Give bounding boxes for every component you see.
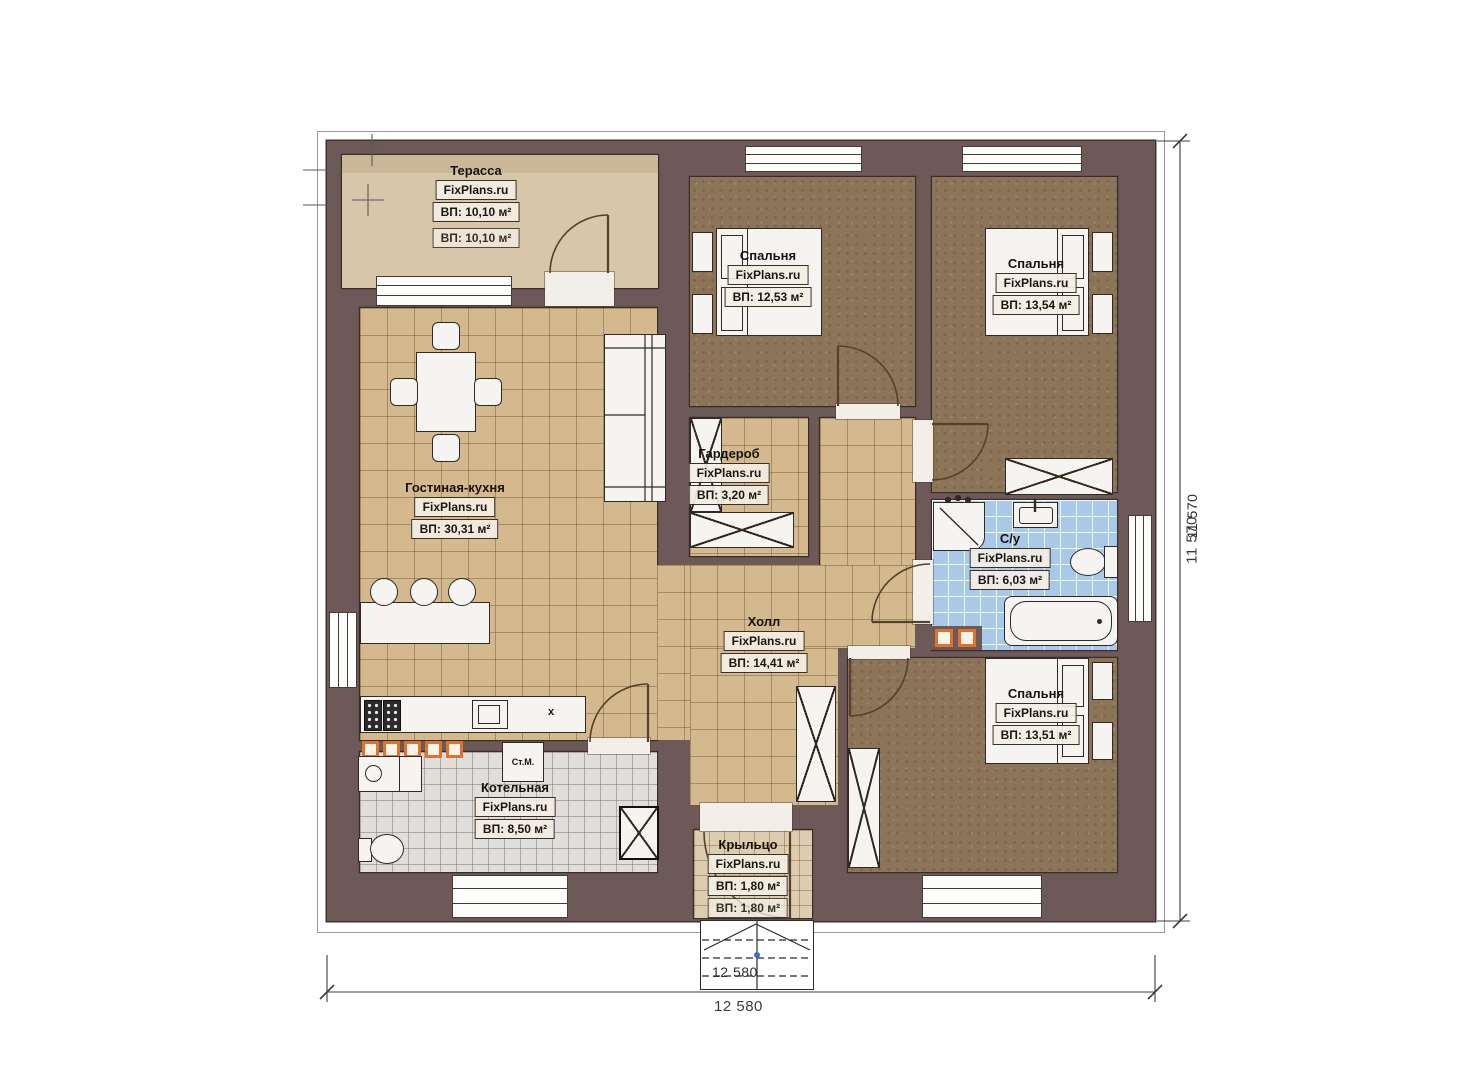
wardrobe-area: ВП: 3,20 м² xyxy=(689,485,769,505)
kitchen-radiator-4 xyxy=(425,741,442,758)
bedroom2-nightstand-bottom xyxy=(1092,294,1113,334)
terrace-area: ВП: 10,10 м² xyxy=(433,202,520,222)
boiler-sink-bowl xyxy=(365,765,382,782)
window-terrace-living xyxy=(376,276,512,306)
label-porch: Крыльцо FixPlans.ru ВП: 1,80 м² ВП: 1,80… xyxy=(708,837,789,918)
boiler-sink-unit xyxy=(358,756,422,792)
bathroom-sink xyxy=(1013,502,1058,528)
bedroom1-nightstand-bottom xyxy=(692,294,713,334)
label-bedroom2: Спальня FixPlans.ru ВП: 13,54 м² xyxy=(993,256,1080,315)
dimension-tick-bottom-right xyxy=(1148,985,1162,999)
label-bedroom1: Спальня FixPlans.ru ВП: 12,53 м² xyxy=(725,248,812,307)
living-kitchen-area: ВП: 30,31 м² xyxy=(412,519,499,539)
door-opening-boiler xyxy=(588,738,650,754)
floor-plan: x Ст.М. xyxy=(0,0,1473,1080)
living-kitchen-title: Гостиная-кухня xyxy=(405,480,505,495)
kitchen-unit-mark: x xyxy=(548,706,554,718)
bathroom-brand: FixPlans.ru xyxy=(970,548,1051,568)
bathroom-radiator-2 xyxy=(958,629,976,647)
stove-burners-left xyxy=(364,700,382,731)
boiler-sink-divider xyxy=(399,757,400,791)
bedroom2-brand: FixPlans.ru xyxy=(996,273,1077,293)
bedroom2-nightstand-top xyxy=(1092,232,1113,272)
bathroom-toilet-tank xyxy=(1104,546,1118,578)
kitchen-radiator-5 xyxy=(446,741,463,758)
bedroom2-title: Спальня xyxy=(1008,256,1064,271)
terrace-brand: FixPlans.ru xyxy=(436,180,517,200)
bedroom3-closet xyxy=(848,748,880,868)
dining-chair-bottom xyxy=(432,434,460,462)
bar-stool-1 xyxy=(370,578,398,606)
dimension-tick-right-bottom xyxy=(1173,914,1187,928)
dimension-tick-right-top xyxy=(1173,134,1187,148)
bar-stool-2 xyxy=(410,578,438,606)
living-hall-passage-floor xyxy=(657,565,690,740)
dining-chair-left xyxy=(390,378,418,406)
window-living-left xyxy=(329,612,357,688)
bathroom-radiator-1 xyxy=(935,629,953,647)
bedroom3-nightstand-top xyxy=(1092,662,1113,700)
label-bathroom: С/у FixPlans.ru ВП: 6,03 м² xyxy=(970,531,1051,590)
door-opening-bedroom2 xyxy=(913,420,933,482)
porch-title: Крыльцо xyxy=(718,837,777,852)
bedroom3-area: ВП: 13,51 м² xyxy=(993,725,1080,745)
window-bathroom-right xyxy=(1128,515,1152,622)
bathroom-sink-basin xyxy=(1019,507,1053,524)
dimension-bottom: 12 580 xyxy=(714,998,763,1015)
kitchen-sink xyxy=(472,700,508,729)
door-opening-bedroom3 xyxy=(848,646,910,659)
door-opening-bedroom1 xyxy=(836,404,900,419)
boiler-toilet-bowl xyxy=(370,834,404,864)
dining-chair-right xyxy=(474,378,502,406)
bedroom2-area: ВП: 13,54 м² xyxy=(993,295,1080,315)
hall-area: ВП: 14,41 м² xyxy=(721,653,808,673)
porch-brand: FixPlans.ru xyxy=(708,854,789,874)
terrace-area-duplicate: ВП: 10,10 м² xyxy=(433,228,520,248)
window-bedroom3-bottom xyxy=(922,875,1042,918)
boiler-room-title: Котельная xyxy=(481,780,549,795)
window-boiler-bottom xyxy=(452,875,568,918)
bathroom-toilet-bowl xyxy=(1070,548,1106,576)
door-opening-bathroom xyxy=(913,560,933,624)
label-boiler-room: Котельная FixPlans.ru ВП: 8,50 м² xyxy=(475,780,556,839)
hall-brand: FixPlans.ru xyxy=(724,631,805,651)
window-bedroom2-top xyxy=(962,146,1082,172)
bathroom-area: ВП: 6,03 м² xyxy=(970,570,1050,590)
bedroom2-closet xyxy=(1005,458,1113,495)
dimension-right: 11 570 xyxy=(1184,516,1201,564)
terrace-title: Терасса xyxy=(450,163,502,178)
bedroom1-nightstand-top xyxy=(692,232,713,272)
bedroom1-brand: FixPlans.ru xyxy=(728,265,809,285)
stove-burners-right xyxy=(383,700,401,731)
window-bedroom1-top xyxy=(745,146,862,172)
wardrobe-closet-horizontal xyxy=(690,512,794,548)
bathtub xyxy=(1004,596,1118,646)
boiler-room-area: ВП: 8,50 м² xyxy=(475,819,555,839)
dimension-tick-bottom-left xyxy=(320,985,334,999)
hall-closet xyxy=(796,686,836,802)
boiler-unit xyxy=(619,806,659,860)
bedroom3-brand: FixPlans.ru xyxy=(996,703,1077,723)
door-opening-terrace xyxy=(545,272,614,306)
dining-chair-top xyxy=(432,322,460,350)
bedroom1-area: ВП: 12,53 м² xyxy=(725,287,812,307)
bathtub-drain xyxy=(1097,619,1102,624)
bedroom3-title: Спальня xyxy=(1008,686,1064,701)
door-opening-entrance xyxy=(700,803,792,831)
bathroom-title: С/у xyxy=(1000,531,1020,546)
label-bedroom3: Спальня FixPlans.ru ВП: 13,51 м² xyxy=(993,686,1080,745)
bar-counter xyxy=(360,602,490,644)
living-kitchen-brand: FixPlans.ru xyxy=(415,497,496,517)
porch-area: ВП: 1,80 м² xyxy=(708,876,788,896)
label-hall: Холл FixPlans.ru ВП: 14,41 м² xyxy=(721,614,808,673)
bedroom3-nightstand-bottom xyxy=(1092,722,1113,760)
washing-machine-label: Ст.М. xyxy=(512,757,535,767)
label-living-kitchen: Гостиная-кухня FixPlans.ru ВП: 30,31 м² xyxy=(405,480,505,539)
boiler-room-brand: FixPlans.ru xyxy=(475,797,556,817)
label-wardrobe: Гардероб FixPlans.ru ВП: 3,20 м² xyxy=(689,446,770,505)
hall-floor-upper xyxy=(820,418,915,565)
dimension-bottom-duplicate: 12 580 xyxy=(712,964,758,980)
hall-title: Холл xyxy=(748,614,781,629)
kitchen-sink-basin xyxy=(478,705,500,724)
dining-table xyxy=(416,352,476,432)
wardrobe-brand: FixPlans.ru xyxy=(689,463,770,483)
label-terrace: Терасса FixPlans.ru ВП: 10,10 м² ВП: 10,… xyxy=(433,163,520,248)
bedroom1-title: Спальня xyxy=(740,248,796,263)
bar-stool-3 xyxy=(448,578,476,606)
washing-machine: Ст.М. xyxy=(502,742,544,782)
porch-area-duplicate: ВП: 1,80 м² xyxy=(708,898,788,918)
sofa xyxy=(604,334,666,502)
wardrobe-title: Гардероб xyxy=(698,446,759,461)
